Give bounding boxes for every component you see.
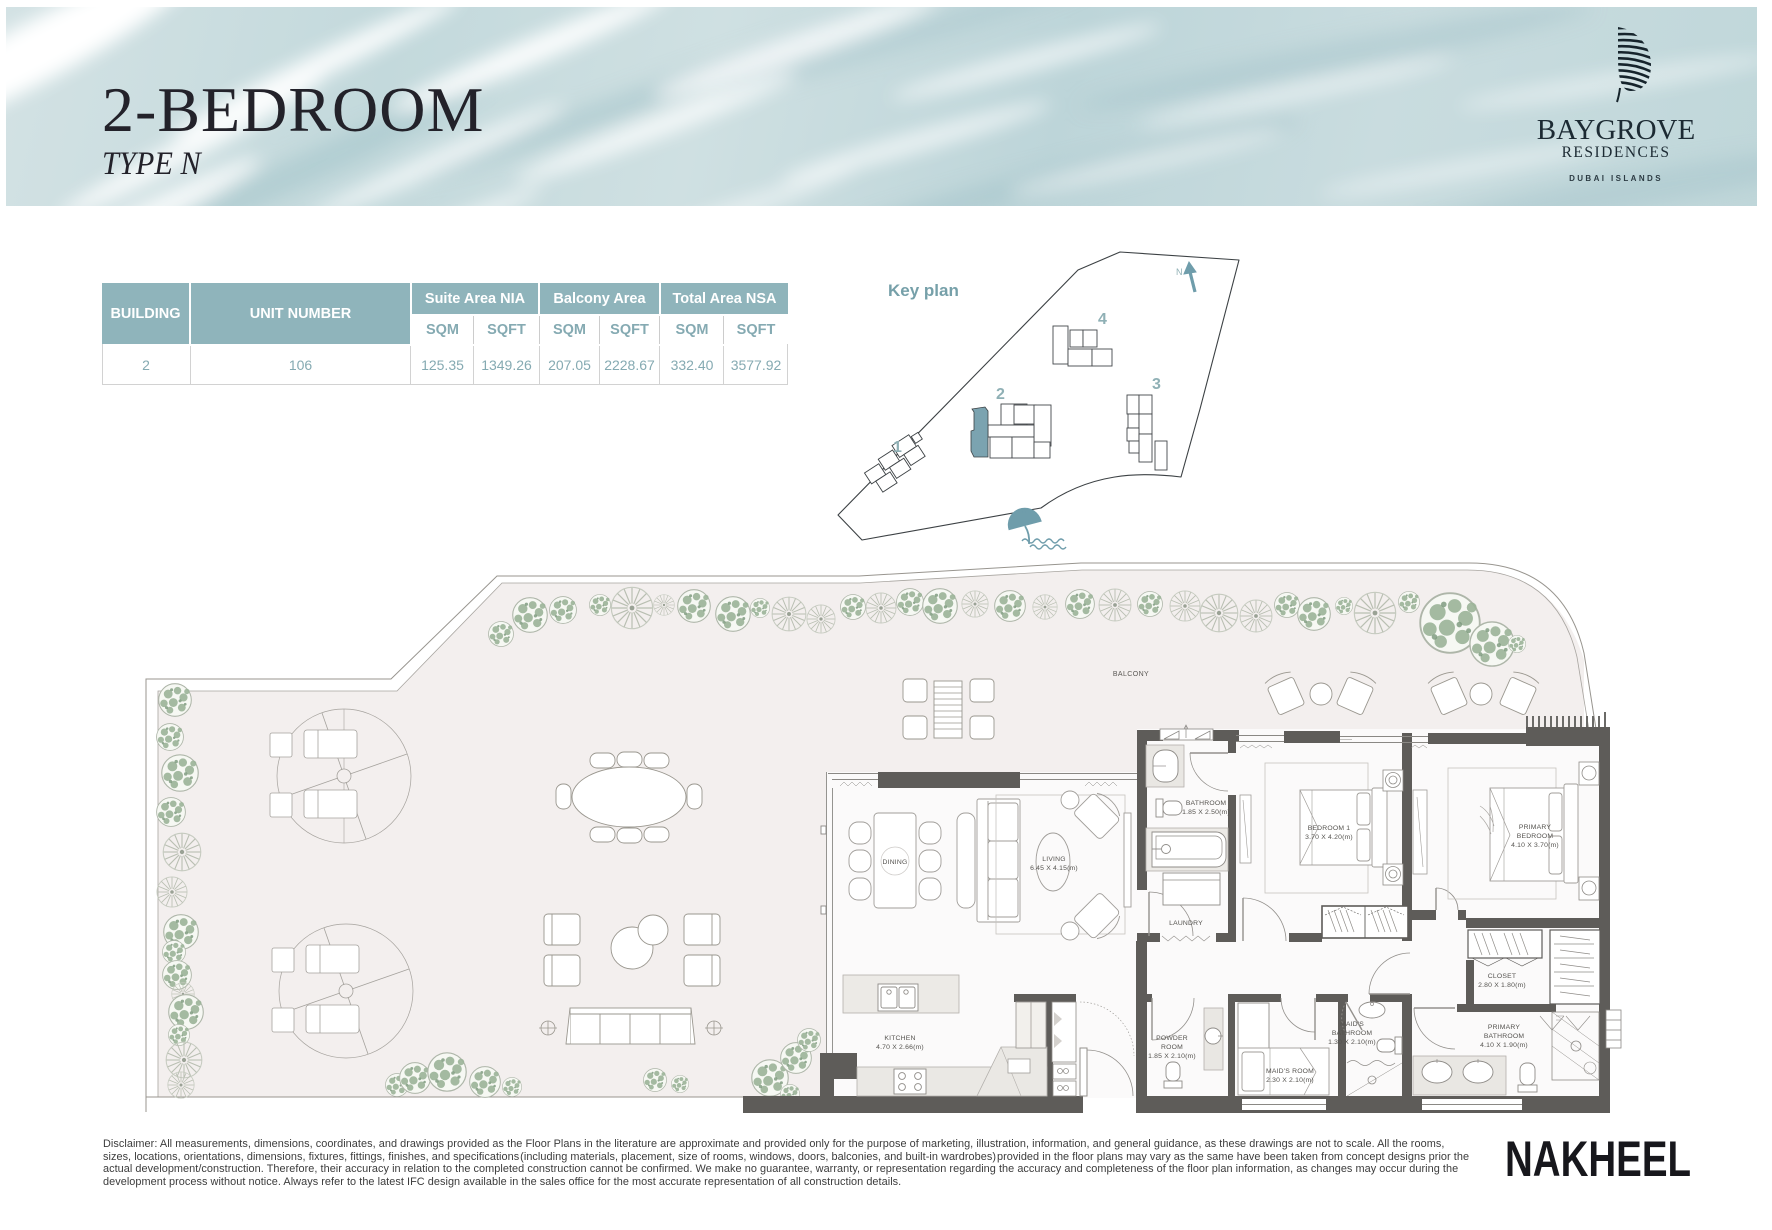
svg-text:BATHROOM: BATHROOM (1484, 1033, 1525, 1040)
svg-text:4.70 X 2.66(m): 4.70 X 2.66(m) (876, 1044, 924, 1051)
svg-text:PRIMARY: PRIMARY (1488, 1024, 1521, 1031)
svg-text:2: 2 (996, 386, 1005, 403)
svg-text:1.85 X 2.10(m): 1.85 X 2.10(m) (1148, 1053, 1196, 1060)
svg-text:3: 3 (1152, 376, 1161, 393)
svg-text:ROOM: ROOM (1161, 1044, 1183, 1051)
svg-text:2.80 X 1.80(m): 2.80 X 1.80(m) (1478, 982, 1526, 989)
svg-text:BATHROOM: BATHROOM (1332, 1030, 1373, 1037)
svg-text:1.30 X 2.10(m): 1.30 X 2.10(m) (1328, 1039, 1376, 1046)
svg-text:LAUNDRY: LAUNDRY (1169, 920, 1203, 927)
svg-text:6.45 X 4.15(m): 6.45 X 4.15(m) (1030, 865, 1078, 872)
svg-text:LIVING: LIVING (1042, 856, 1066, 863)
svg-text:4: 4 (1098, 311, 1107, 328)
svg-text:1: 1 (893, 439, 902, 456)
svg-text:Key plan: Key plan (888, 281, 959, 300)
svg-text:2.30 X 2.10(m): 2.30 X 2.10(m) (1266, 1077, 1314, 1084)
svg-text:N: N (1176, 267, 1183, 277)
svg-text:BATHROOM: BATHROOM (1186, 800, 1227, 807)
svg-text:KITCHEN: KITCHEN (884, 1035, 915, 1042)
svg-text:DINING: DINING (883, 859, 908, 866)
svg-text:1.85 X 2.50(m): 1.85 X 2.50(m) (1182, 809, 1230, 816)
svg-text:MAID'S ROOM: MAID'S ROOM (1266, 1068, 1314, 1075)
svg-text:CLOSET: CLOSET (1488, 973, 1516, 980)
svg-text:4.10 X 1.90(m): 4.10 X 1.90(m) (1480, 1042, 1528, 1049)
svg-text:NAKHEEL: NAKHEEL (1505, 1131, 1691, 1187)
svg-text:BALCONY: BALCONY (1113, 671, 1149, 678)
svg-text:BEDROOM 1: BEDROOM 1 (1308, 825, 1351, 832)
svg-text:4.10 X 3.70(m): 4.10 X 3.70(m) (1511, 842, 1559, 849)
svg-text:PRIMARY: PRIMARY (1519, 824, 1552, 831)
svg-text:3.70 X 4.20(m): 3.70 X 4.20(m) (1305, 834, 1353, 841)
svg-text:POWDER: POWDER (1156, 1035, 1188, 1042)
svg-text:MAID'S: MAID'S (1340, 1021, 1364, 1028)
svg-text:BEDROOM: BEDROOM (1517, 833, 1554, 840)
